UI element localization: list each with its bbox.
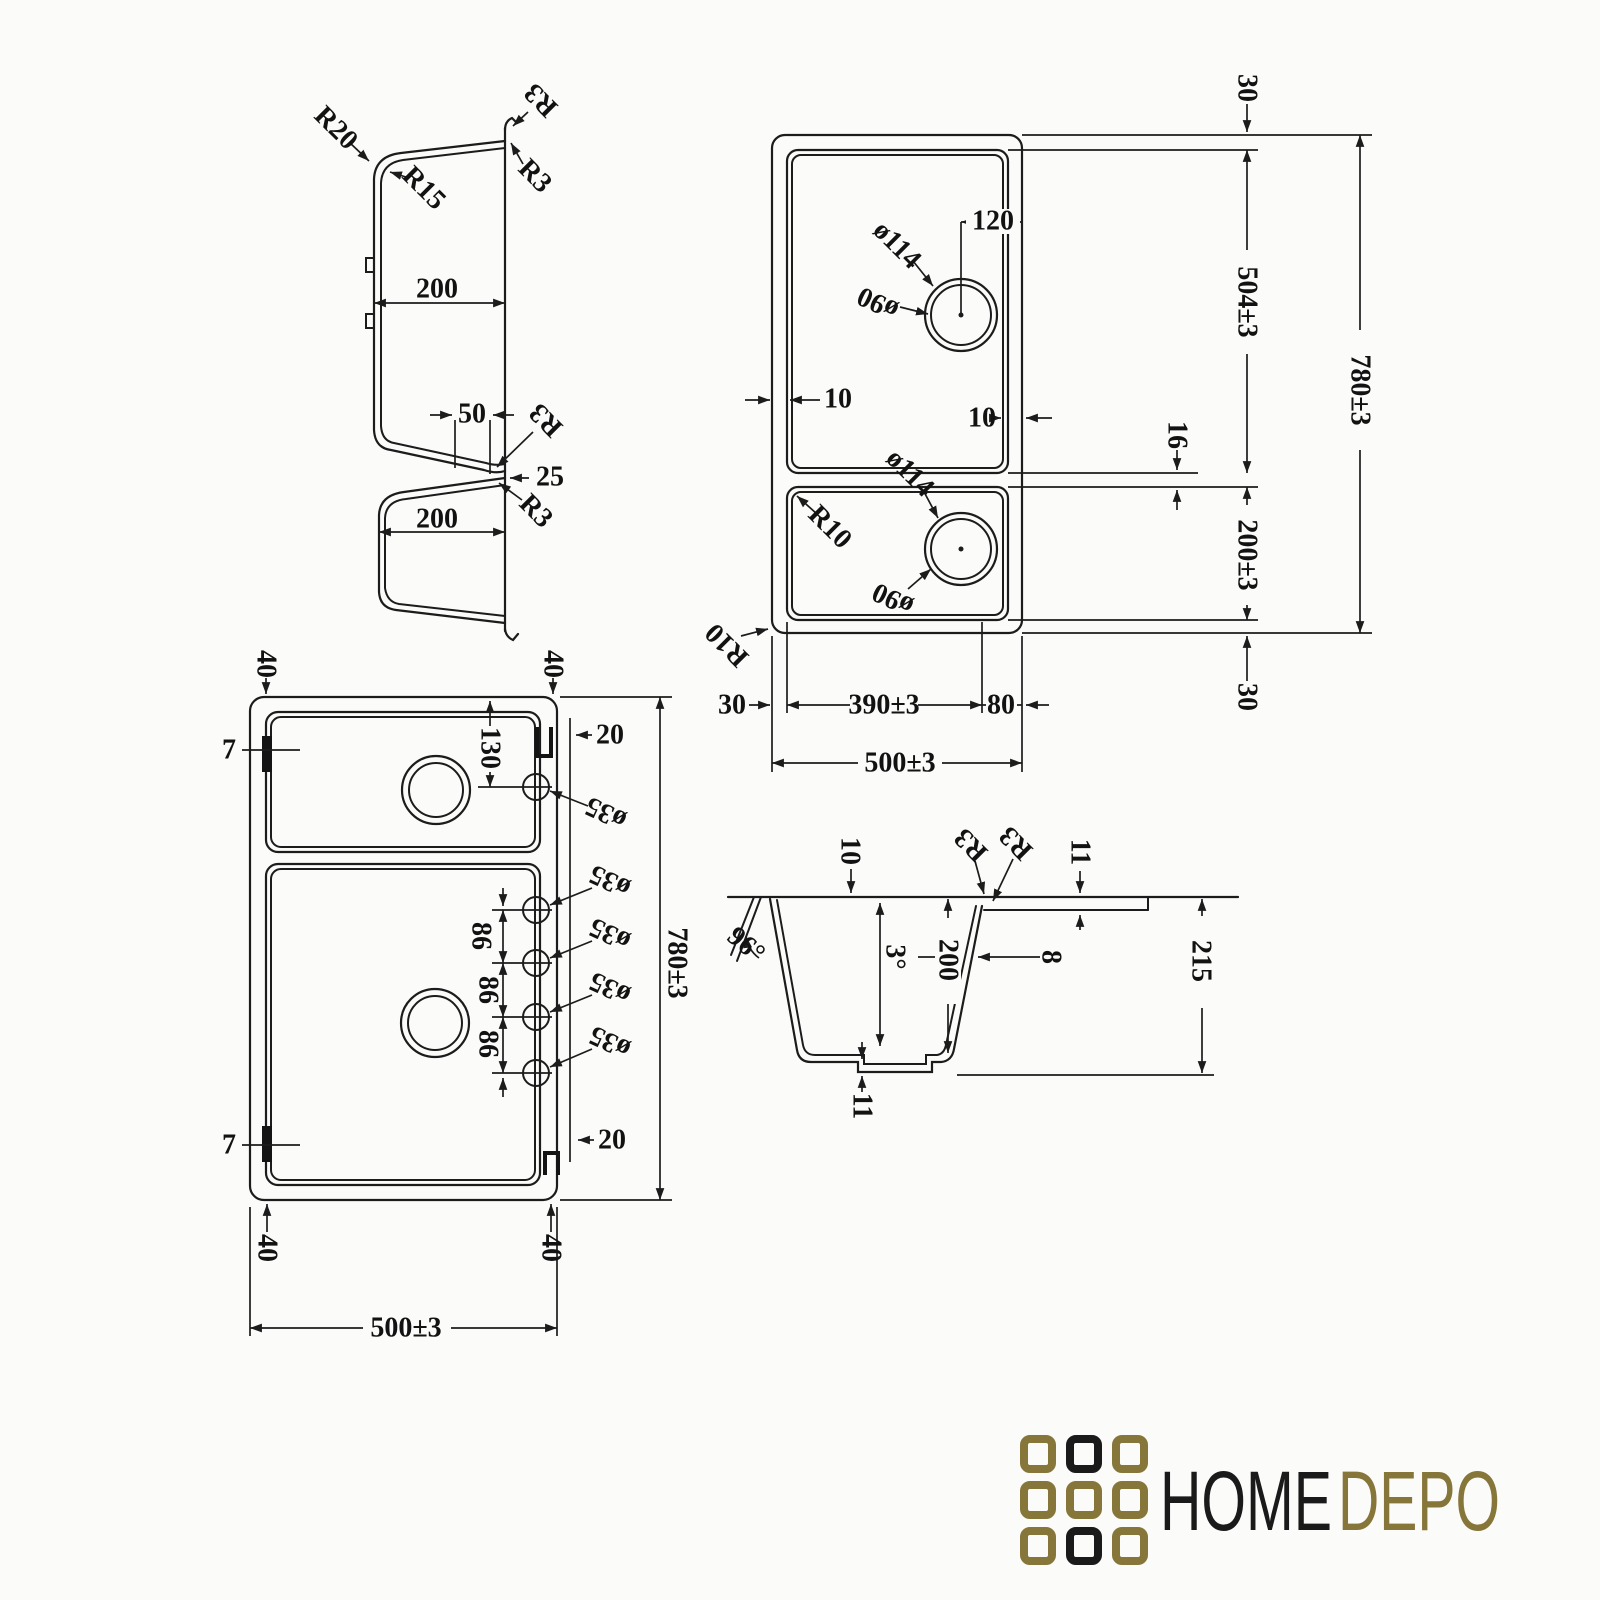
dim-label-96deg: 96° <box>721 921 771 970</box>
dim-label-500: 500±3 <box>864 748 935 779</box>
dim-label-r15: R15 <box>396 160 452 216</box>
dim-label-r10-outer: R10 <box>699 617 755 673</box>
logo-text-home: HOME <box>1160 1454 1332 1548</box>
dim-label-20-bottom: 20 <box>598 1125 626 1156</box>
dim-label-dia90-upper: ø90 <box>852 280 903 326</box>
dim-label-86-2: 86 <box>473 976 504 1004</box>
dim-label-dia35-2: ø35 <box>584 858 635 904</box>
blueprint-page: R20 R15 R3 R3 200 50 R3 25 R3 200 <box>0 0 1600 1600</box>
dim-label-86-1: 86 <box>466 922 497 950</box>
sink-drawing: R20 R15 R3 R3 200 50 R3 25 R3 200 <box>0 0 1600 1600</box>
dim-label-10-section: 10 <box>835 837 866 865</box>
dim-label-11-bottom: 11 <box>847 1093 878 1119</box>
dim-label-215: 215 <box>1186 940 1217 982</box>
dim-label-30-left: 30 <box>718 690 746 721</box>
dim-label-dia35-1: ø35 <box>580 790 631 836</box>
logo-text-depo: DEPO <box>1338 1454 1500 1548</box>
dim-label-16: 16 <box>1162 421 1193 449</box>
dim-label-40-tr: 40 <box>538 650 569 678</box>
mounting-clip-top-left <box>262 736 272 772</box>
plan-overall-view: 120 ø114 ø90 10 10 16 ø114 R10 ø90 R10 3… <box>699 74 1376 779</box>
dim-label-200pm: 200±3 <box>1232 519 1263 590</box>
dim-label-dia114-lower: ø114 <box>880 443 940 503</box>
dim-label-500-holes: 500±3 <box>370 1313 441 1344</box>
dim-label-10-left: 10 <box>824 384 852 415</box>
dim-label-8-wall: 8 <box>1036 950 1067 964</box>
plan-holes-outline <box>250 697 558 1200</box>
dim-label-3deg: 3° <box>880 944 911 969</box>
dim-label-20-top: 20 <box>596 720 624 751</box>
logo-grid-icon <box>1024 1439 1144 1561</box>
profile-section-view: R20 R15 R3 R3 200 50 R3 25 R3 200 <box>308 77 569 640</box>
dim-label-7-bottom: 7 <box>222 1130 236 1161</box>
dim-label-200-depth: 200 <box>933 939 964 981</box>
dim-label-30-bottom-right: 30 <box>1232 683 1263 711</box>
dim-label-r3-b: R3 <box>993 820 1039 866</box>
plan-holes-view: 40 40 7 20 130 ø35 ø35 ø35 ø35 ø35 86 86… <box>222 650 693 1344</box>
dim-label-200-lower: 200 <box>416 504 458 535</box>
dim-label-r3-top: R3 <box>518 77 564 123</box>
dim-label-130: 130 <box>475 727 506 769</box>
dim-label-40-br: 40 <box>536 1234 567 1262</box>
dim-label-504: 504±3 <box>1232 266 1263 337</box>
dim-label-11-top: 11 <box>1065 839 1096 865</box>
plan-overall-dimensions: 120 ø114 ø90 10 10 16 ø114 R10 ø90 R10 3… <box>699 74 1376 779</box>
dim-label-25: 25 <box>536 462 564 493</box>
logo-wordmark: HOME DEPO <box>1160 1454 1500 1548</box>
dim-label-r3-waist-lower: R3 <box>513 488 559 534</box>
dim-label-390: 390±3 <box>848 690 919 721</box>
dim-label-10-right: 10 <box>968 403 996 434</box>
bowl-section-outline <box>728 897 1238 1072</box>
bowl-section-view: 10 R3 R3 11 96° 3° 200 8 215 11 <box>721 820 1238 1119</box>
dim-label-30-top: 30 <box>1232 74 1263 102</box>
dim-label-80: 80 <box>987 690 1015 721</box>
dim-label-r3-lip: R3 <box>512 153 558 199</box>
dim-label-50: 50 <box>458 399 486 430</box>
dim-label-40-bl: 40 <box>252 1234 283 1262</box>
dim-label-40-tl: 40 <box>251 650 282 678</box>
dim-label-86-3: 86 <box>473 1030 504 1058</box>
mounting-clip-bottom-right <box>545 1153 558 1175</box>
dim-label-200-upper: 200 <box>416 274 458 305</box>
dim-label-7-top: 7 <box>222 735 236 766</box>
dim-label-dia35-3: ø35 <box>584 911 635 957</box>
dim-label-dia35-5: ø35 <box>584 1019 635 1065</box>
dim-label-780: 780±3 <box>1345 354 1376 425</box>
dim-label-120: 120 <box>972 206 1014 237</box>
brand-logo: HOME DEPO <box>1024 1439 1500 1561</box>
dim-label-r3-a: R3 <box>948 822 994 868</box>
profile-dimensions: R20 R15 R3 R3 200 50 R3 25 R3 200 <box>308 77 569 535</box>
dim-label-dia35-4: ø35 <box>584 965 635 1011</box>
mounting-clip-bottom-left <box>262 1126 272 1162</box>
dim-label-780-holes: 780±3 <box>662 927 693 998</box>
